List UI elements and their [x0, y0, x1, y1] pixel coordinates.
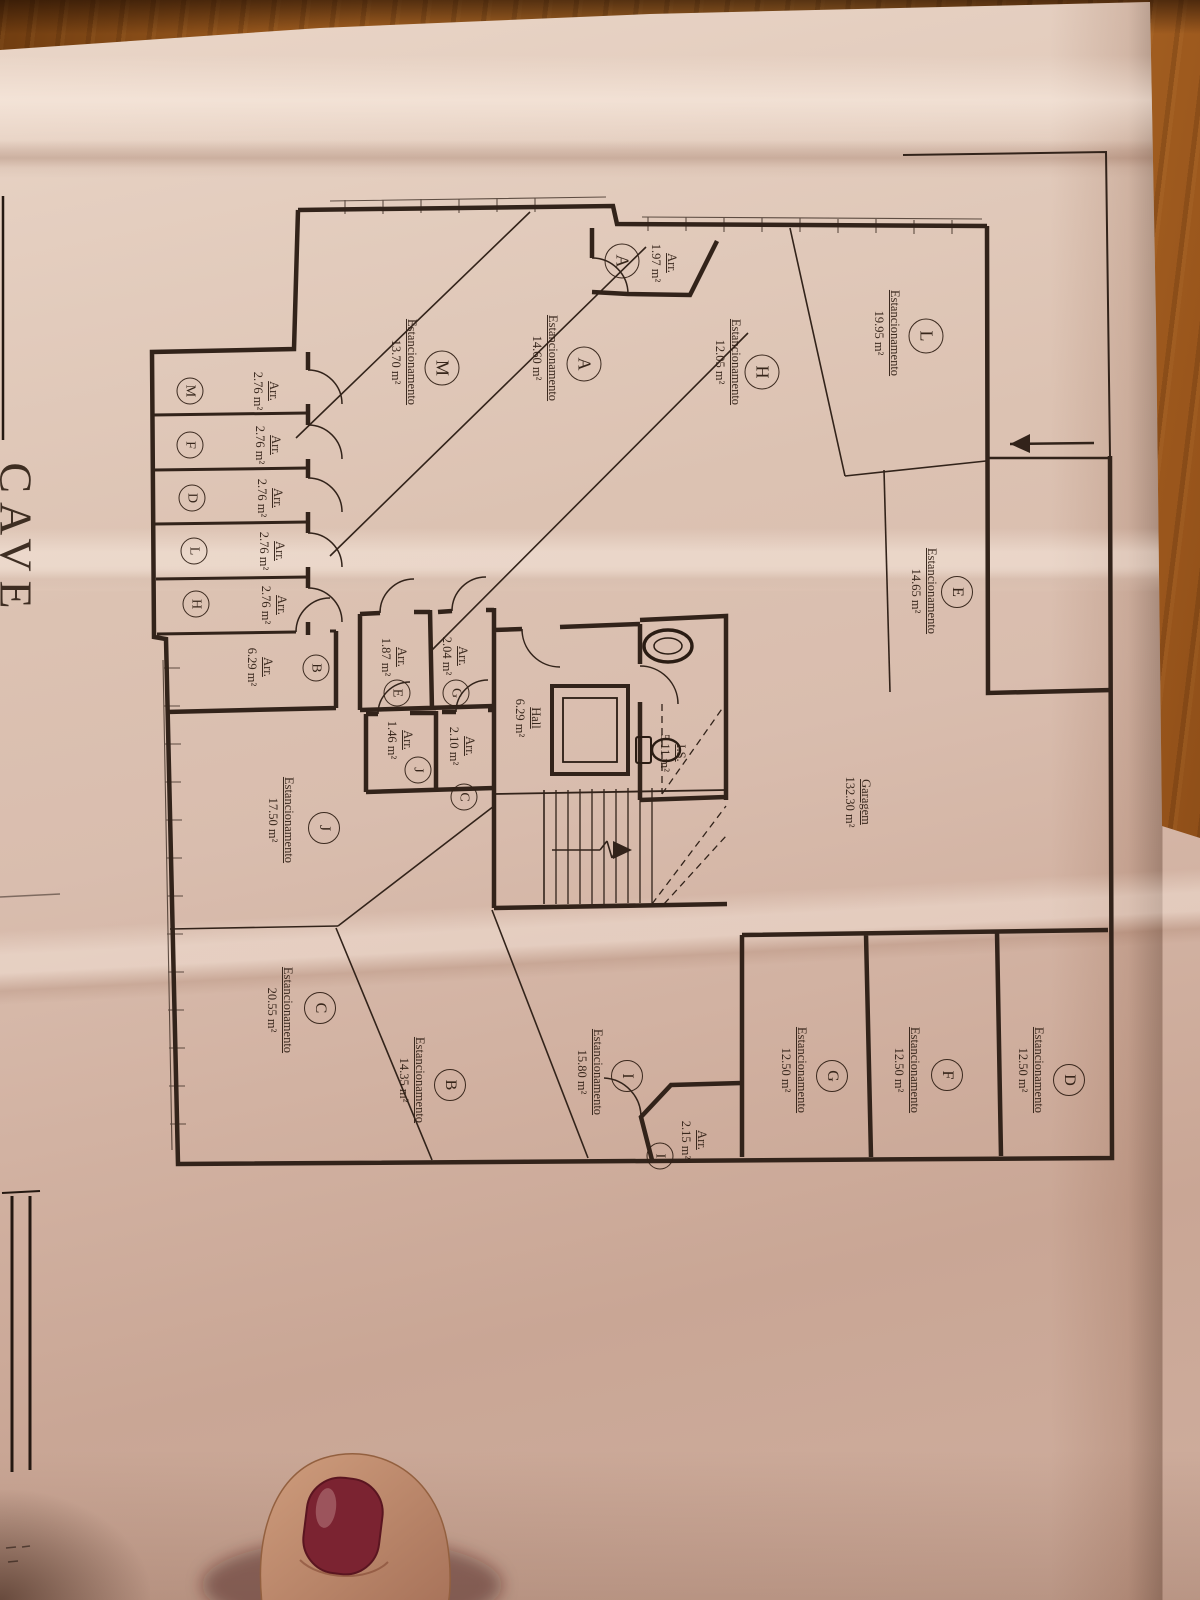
parking-word: Estancionamento: [590, 1029, 606, 1115]
parking-label-F: Estancionamento 12.50 m²: [891, 1027, 923, 1113]
room-name: I.S.: [673, 734, 689, 772]
storage-circle-I: I: [647, 1143, 674, 1170]
parking-circle-F: F: [931, 1059, 963, 1091]
storage-circle-B: B: [303, 655, 330, 682]
parking-area: 15.80 m²: [574, 1029, 590, 1115]
room-area: 132.30 m²: [842, 777, 858, 828]
parking-word: Estancionamento: [281, 777, 297, 863]
parking-label-D: Estancionamento 12.50 m²: [1015, 1027, 1047, 1113]
parking-circle-I: I: [611, 1060, 643, 1092]
parking-area: 14.60 m²: [529, 315, 545, 401]
storage-label-A: Arr. 1.97 m²: [648, 244, 680, 282]
parking-label-J: Estancionamento 17.50 m²: [265, 777, 297, 863]
parking-area: 12.05 m²: [712, 319, 728, 405]
photo-of-floorplan: CAVE Estancionamento 19.95 m² L Estancio…: [0, 0, 1200, 1600]
storage-circle-C: C: [451, 784, 478, 811]
storage-word: Arr.: [394, 638, 410, 676]
storage-label-E: Arr. 1.87 m²: [378, 638, 410, 676]
storage-area: 1.97 m²: [648, 244, 664, 282]
parking-label-H: Estancionamento 12.05 m²: [712, 319, 744, 405]
room-name: Garagem: [858, 777, 874, 828]
storage-word: Arr.: [260, 648, 276, 686]
parking-area: 17.50 m²: [265, 777, 281, 863]
storage-label-G: Arr. 2.04 m²: [439, 637, 471, 675]
hall-label: Hall 6.29 m²: [512, 699, 544, 737]
parking-label-B: Estancionamento 14.35 m²: [396, 1037, 428, 1123]
storage-area: 2.76 m²: [250, 372, 266, 410]
parking-word: Estancionamento: [794, 1027, 810, 1113]
storage-word: Arr.: [266, 372, 282, 410]
storage-area: 2.04 m²: [439, 637, 455, 675]
garage-label: Garagem 132.30 m²: [842, 777, 874, 828]
sink-fixture: [644, 630, 692, 662]
storage-label-L: Arr. 2.76 m²: [256, 532, 288, 570]
storage-area: 2.76 m²: [256, 532, 272, 570]
parking-area: 14.35 m²: [396, 1037, 412, 1123]
parking-word: Estancionamento: [412, 1037, 428, 1123]
parking-word: Estancionamento: [545, 315, 561, 401]
parking-area: 12.50 m²: [778, 1027, 794, 1113]
parking-label-L: Estancionamento 19.95 m²: [871, 290, 903, 376]
wc-label: I.S. 5.11 m²: [657, 734, 689, 772]
floor-title: CAVE: [0, 462, 43, 617]
parking-area: 20.55 m²: [264, 967, 280, 1053]
room-area: 6.29 m²: [512, 699, 528, 737]
parking-area: 13.70 m²: [388, 319, 404, 405]
storage-word: Arr.: [400, 721, 416, 759]
storage-area: 2.10 m²: [446, 727, 462, 765]
storage-area: 2.76 m²: [254, 479, 270, 517]
parking-label-I: Estancionamento 15.80 m²: [574, 1029, 606, 1115]
parking-word: Estancionamento: [728, 319, 744, 405]
storage-word: Arr.: [268, 426, 284, 464]
parking-area: 12.50 m²: [891, 1027, 907, 1113]
parking-word: Estancionamento: [280, 967, 296, 1053]
parking-area: 12.50 m²: [1015, 1027, 1031, 1113]
storage-label-H: Arr. 2.76 m²: [258, 586, 290, 624]
parking-circle-J: J: [308, 812, 340, 844]
ramp-direction-arrow: [1010, 434, 1030, 453]
storage-area: 1.87 m²: [378, 638, 394, 676]
storage-word: Arr.: [270, 479, 286, 517]
storage-label-C: Arr. 2.10 m²: [446, 727, 478, 765]
parking-circle-M: M: [425, 351, 460, 386]
storage-area: 1.46 m²: [384, 721, 400, 759]
storage-word: Arr.: [664, 244, 680, 282]
parking-label-M: Estancionamento 13.70 m²: [388, 319, 420, 405]
parking-circle-A: A: [567, 347, 602, 382]
parking-circle-L: L: [909, 319, 944, 354]
parking-word: Estancionamento: [1031, 1027, 1047, 1113]
storage-circle-J: J: [405, 757, 432, 784]
storage-circle-G: G: [443, 680, 470, 707]
stair-direction-arrow: [613, 841, 632, 859]
room-area: 5.11 m²: [657, 734, 673, 772]
storage-label-J: Arr. 1.46 m²: [384, 721, 416, 759]
parking-word: Estancionamento: [907, 1027, 923, 1113]
storage-area: 2.76 m²: [252, 426, 268, 464]
adjacent-sheet-lines: [0, 196, 60, 1562]
storage-circle-M: M: [177, 378, 204, 405]
parking-area: 19.95 m²: [871, 290, 887, 376]
parking-word: Estancionamento: [887, 290, 903, 376]
parking-circle-G: G: [816, 1060, 848, 1092]
storage-word: Arr.: [694, 1121, 710, 1159]
parking-label-C: Estancionamento 20.55 m²: [264, 967, 296, 1053]
parking-word: Estancionamento: [404, 319, 420, 405]
storage-area: 2.15 m²: [678, 1121, 694, 1159]
parking-circle-D: D: [1053, 1064, 1085, 1096]
storage-word: Arr.: [462, 727, 478, 765]
parking-area: 14.65 m²: [908, 548, 924, 634]
storage-circle-L: L: [181, 538, 208, 565]
storage-label-B: Arr. 6.29 m²: [244, 648, 276, 686]
storage-word: Arr.: [272, 532, 288, 570]
storage-label-D: Arr. 2.76 m²: [254, 479, 286, 517]
parking-circle-H: H: [745, 355, 780, 390]
storage-circle-H: H: [183, 591, 210, 618]
storage-label-F: Arr. 2.76 m²: [252, 426, 284, 464]
storage-word: Arr.: [455, 637, 471, 675]
storage-circle-E: E: [384, 680, 411, 707]
floorplan-linework: [0, 0, 1200, 1600]
parking-label-E: Estancionamento 14.65 m²: [908, 548, 940, 634]
storage-circle-F: F: [177, 432, 204, 459]
storage-circle-A: A: [605, 244, 640, 279]
storage-area: 2.76 m²: [258, 586, 274, 624]
elevator-cab: [563, 698, 617, 762]
parking-word: Estancionamento: [924, 548, 940, 634]
storage-word: Arr.: [274, 586, 290, 624]
parking-circle-E: E: [941, 576, 973, 608]
storage-area: 6.29 m²: [244, 648, 260, 686]
parking-label-A: Estancionamento 14.60 m²: [529, 315, 561, 401]
storage-circle-D: D: [179, 485, 206, 512]
storage-label-I: Arr. 2.15 m²: [678, 1121, 710, 1159]
parking-label-G: Estancionamento 12.50 m²: [778, 1027, 810, 1113]
parking-circle-B: B: [434, 1069, 466, 1101]
storage-label-M: Arr. 2.76 m²: [250, 372, 282, 410]
room-name: Hall: [528, 699, 544, 737]
parking-circle-C: C: [304, 992, 336, 1024]
